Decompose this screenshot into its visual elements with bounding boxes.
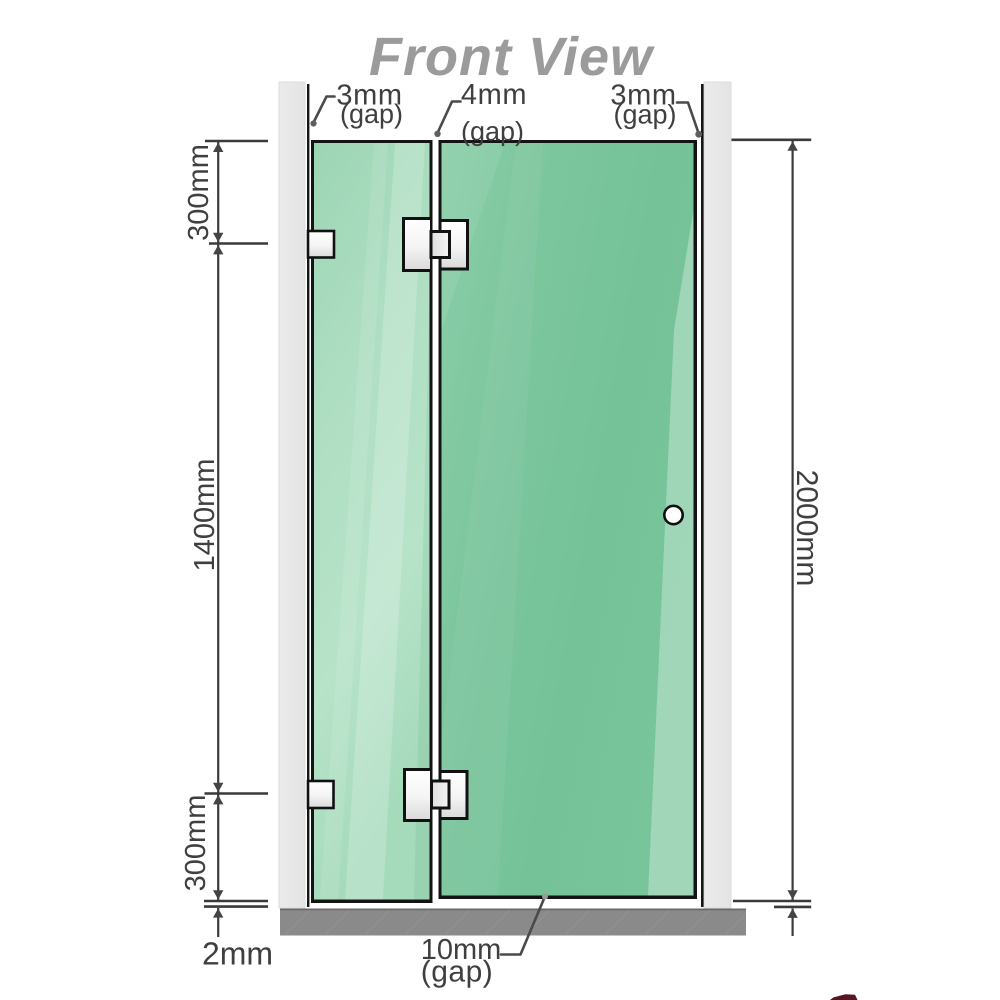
svg-text:1400mm: 1400mm xyxy=(189,459,221,572)
svg-text:300mm: 300mm xyxy=(180,795,212,892)
svg-text:2000mm: 2000mm xyxy=(790,470,823,587)
svg-text:(gap): (gap) xyxy=(421,956,494,989)
svg-text:(gap): (gap) xyxy=(613,100,676,130)
svg-text:(gap): (gap) xyxy=(461,117,524,147)
svg-text:Front View: Front View xyxy=(369,27,655,87)
svg-text:2mm: 2mm xyxy=(202,936,273,972)
svg-text:4mm: 4mm xyxy=(461,79,527,111)
svg-text:(gap): (gap) xyxy=(340,99,403,129)
svg-text:300mm: 300mm xyxy=(183,144,215,241)
